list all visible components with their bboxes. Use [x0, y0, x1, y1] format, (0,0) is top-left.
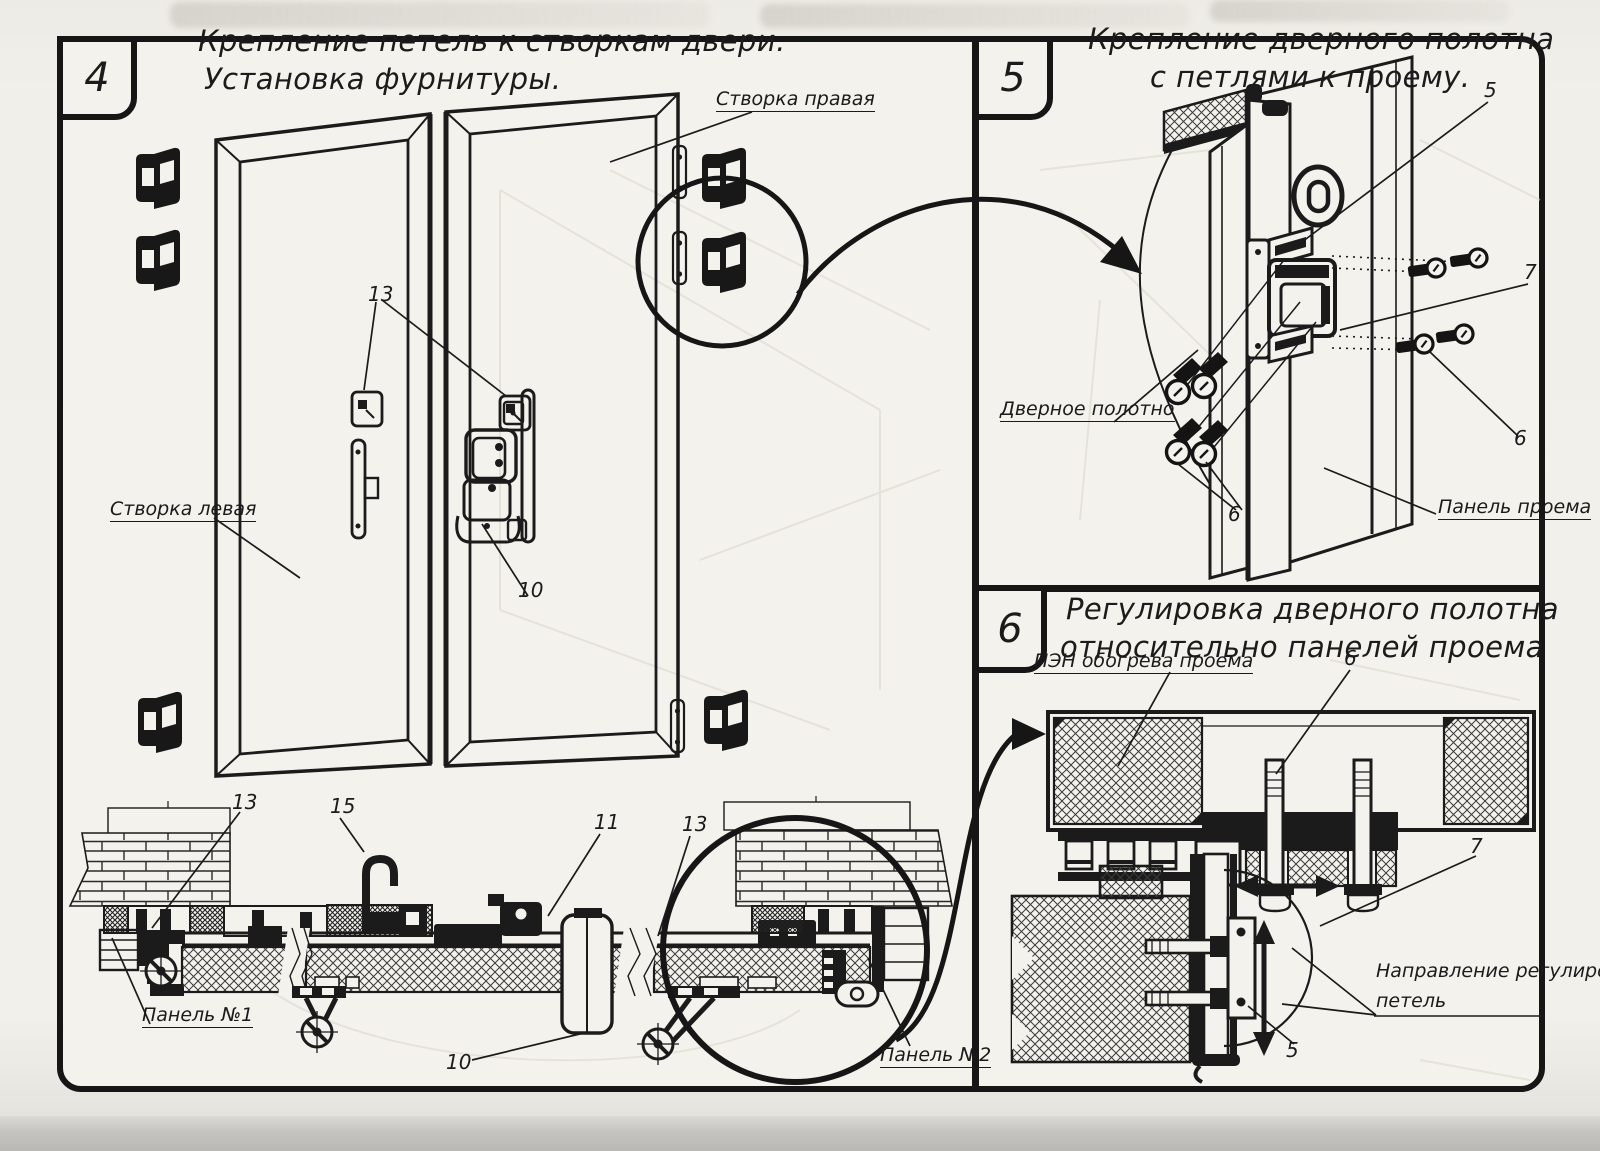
scan-edge-shadow — [0, 1116, 1600, 1151]
callout-6-s6: 6 — [1344, 646, 1357, 670]
callout-15-section: 15 — [330, 794, 355, 818]
callout-7-s5: 7 — [1524, 260, 1537, 284]
callout-6-s5-left: 6 — [1228, 502, 1241, 526]
horizontal-divider — [973, 585, 1539, 592]
section-5-title-line2: с петлями к проему. — [1150, 60, 1470, 94]
label-adjust-direction-line1: Направление регулировки — [1376, 960, 1600, 982]
section-4-number-box: 4 — [57, 36, 137, 120]
section-5-number-box: 5 — [973, 36, 1053, 120]
scanned-assembly-instruction-page: 4 5 6 Крепление петель к створкам двери.… — [0, 0, 1600, 1151]
label-opening-panel: Панель проема — [1438, 496, 1591, 520]
section-5-title-line1: Крепление дверного полотна — [1088, 22, 1554, 56]
callout-11-section: 11 — [594, 810, 619, 834]
label-panel-1: Панель №1 — [142, 1004, 253, 1028]
label-adjust-direction-line2: петель — [1376, 990, 1446, 1012]
sheet-border — [57, 36, 1545, 1092]
callout-13-handles: 13 — [368, 282, 393, 306]
callout-6-s5-right: 6 — [1514, 426, 1527, 450]
label-panel-2: Панель №2 — [880, 1044, 991, 1068]
callout-5-s6: 5 — [1286, 1038, 1299, 1062]
callout-5-s5: 5 — [1484, 78, 1497, 102]
scan-bleedthrough-smudge — [1210, 0, 1510, 22]
vertical-divider — [972, 40, 979, 1088]
label-heater: ПЭН обогрева проема — [1034, 650, 1253, 674]
section-4-number: 4 — [84, 55, 109, 101]
section-4-title-line1: Крепление петель к створкам двери. — [198, 24, 786, 58]
callout-10-section: 10 — [446, 1050, 471, 1074]
label-right-leaf: Створка правая — [716, 88, 875, 112]
section-4-title-line2: Установка фурнитуры. — [204, 62, 561, 96]
label-door-leaf: Дверное полотно — [1000, 398, 1175, 422]
label-left-leaf: Створка левая — [110, 498, 256, 522]
section-6-number: 6 — [997, 606, 1022, 652]
section-6-title-line1: Регулировка дверного полотна — [1066, 592, 1559, 626]
callout-7-s6: 7 — [1470, 834, 1483, 858]
callout-13-section-right: 13 — [682, 812, 707, 836]
section-5-number: 5 — [1000, 55, 1025, 101]
callout-13-section-left: 13 — [232, 790, 257, 814]
callout-10-latch: 10 — [518, 578, 543, 602]
